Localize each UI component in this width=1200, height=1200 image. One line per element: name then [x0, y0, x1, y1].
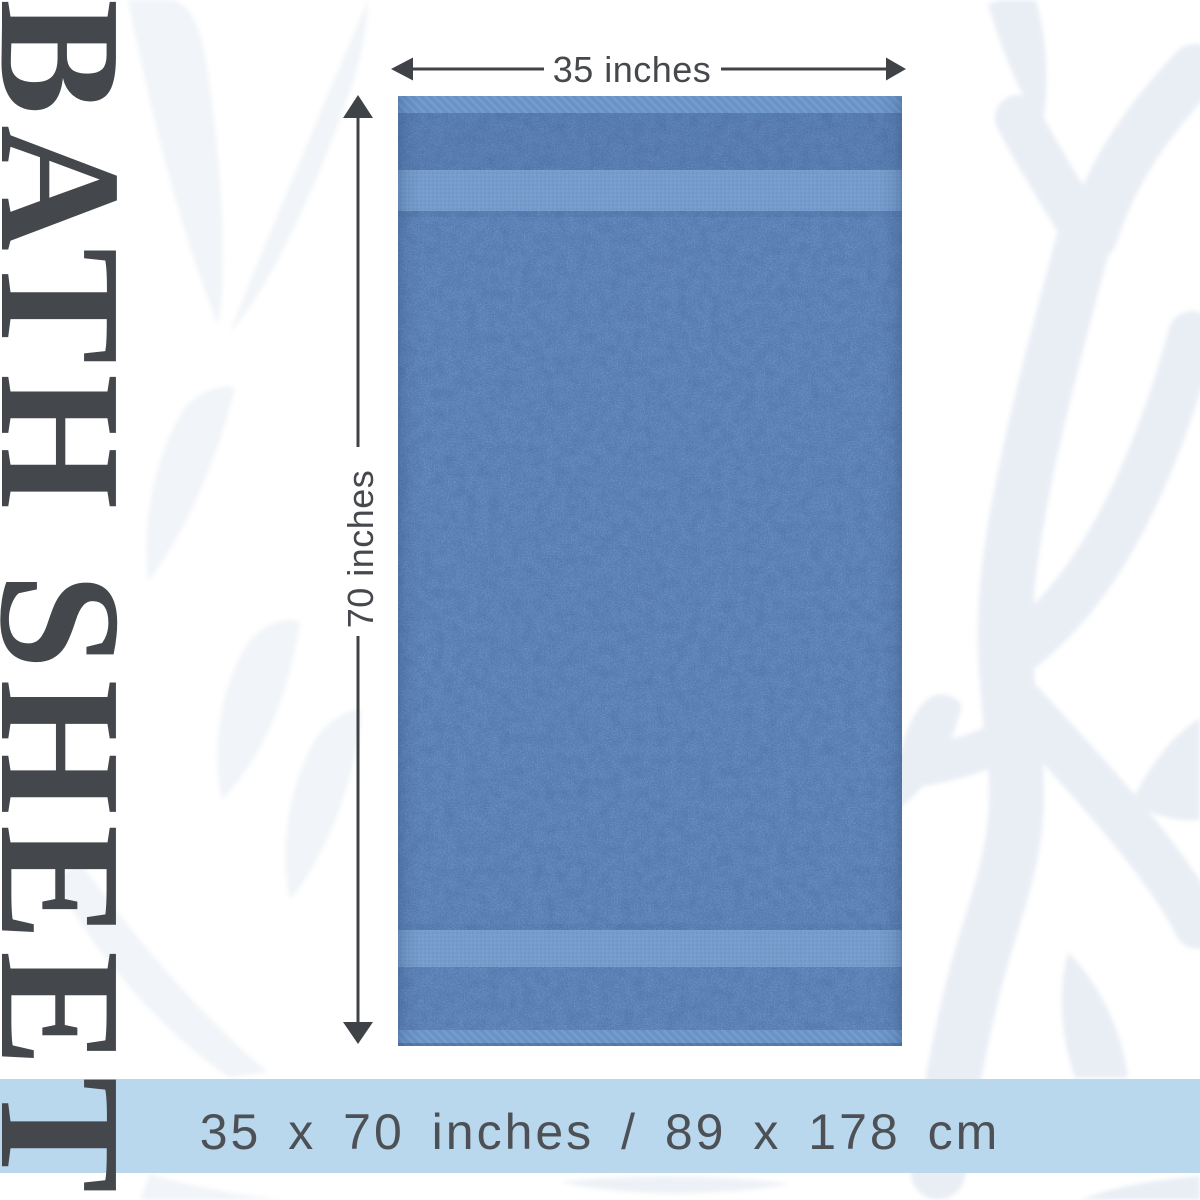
svg-text:BATH SHEET: BATH SHEET [0, 0, 157, 1200]
svg-text:35 inches: 35 inches [553, 49, 712, 90]
svg-text:70 inches: 70 inches [340, 470, 381, 629]
svg-text:35 x 70 inches / 89 x 178 cm: 35 x 70 inches / 89 x 178 cm [200, 1104, 1000, 1160]
